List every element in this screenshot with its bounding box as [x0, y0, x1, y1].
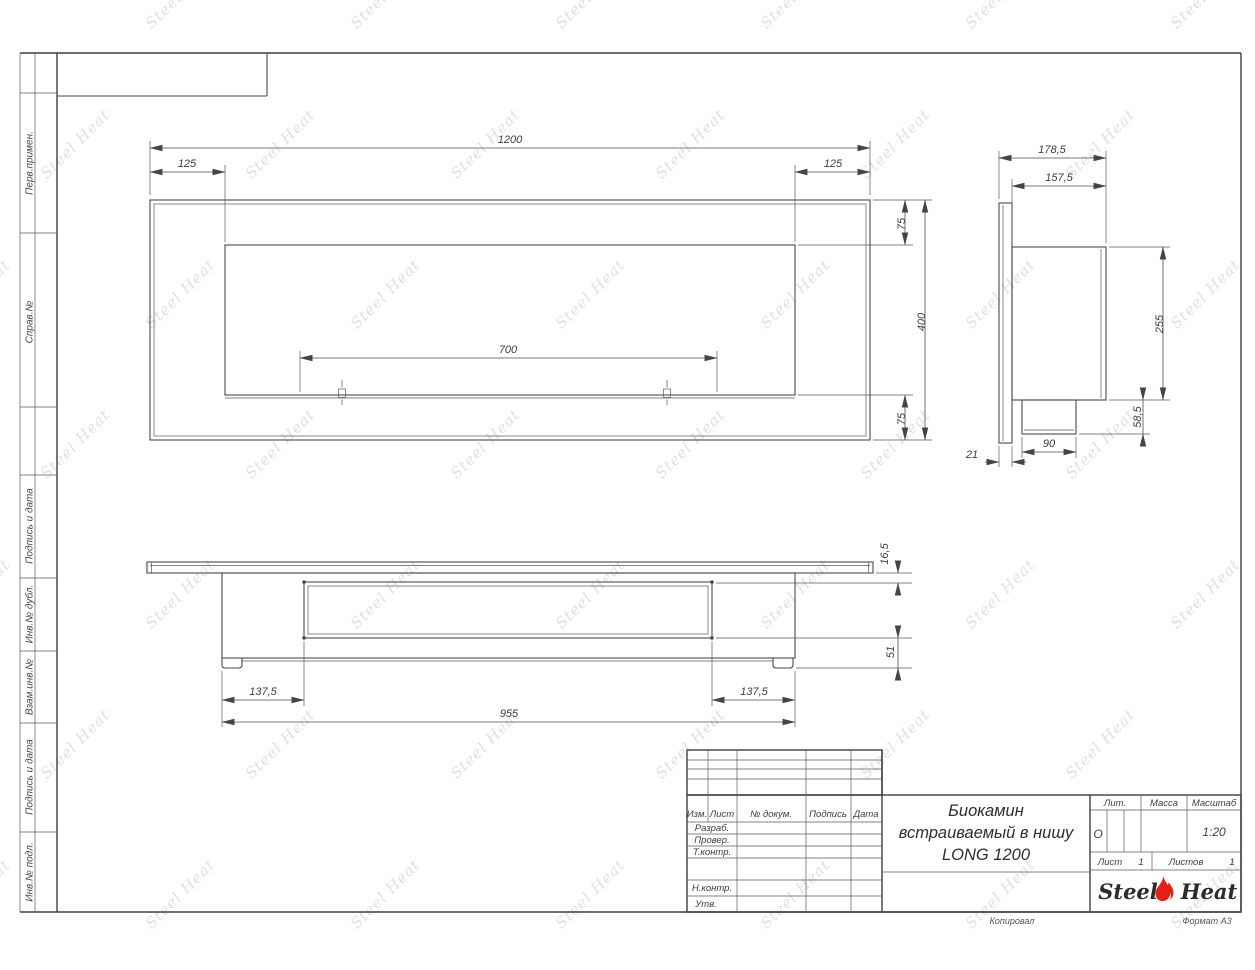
dim-front-burner-length: 700: [499, 344, 518, 356]
sheet-footer: Копировал Формат А3: [990, 916, 1232, 926]
doc-title-line3: LONG 1200: [942, 846, 1031, 864]
stamp-perv-primen: Перв.примен.: [25, 131, 36, 195]
plan-view: 16,5 51 137,5 137,5 955: [147, 542, 912, 727]
front-view: 1200 125 125 700 75 75 400: [150, 134, 932, 440]
stamp-podpis-data-2: Подпись и дата: [25, 739, 36, 815]
dim-plan-left-inset: 137,5: [249, 686, 277, 698]
steelheat-logo: Steel Heat: [1098, 876, 1237, 904]
dim-front-height: 400: [916, 312, 928, 331]
dim-plan-right-inset: 137,5: [740, 686, 768, 698]
dim-plan-body-width: 955: [500, 708, 519, 720]
lit-value: О: [1093, 827, 1102, 841]
mass-label: Масса: [1150, 798, 1178, 809]
sheet-label: Лист: [1097, 857, 1123, 868]
flame-icon: [1156, 876, 1174, 901]
dim-front-right-inset: 125: [824, 158, 843, 170]
logo-text-steel: Steel: [1098, 879, 1158, 904]
col-docnum: № докум.: [750, 809, 792, 820]
doc-title-line1: Биокамин: [948, 802, 1024, 820]
scale-value: 1:20: [1202, 825, 1226, 839]
row-prover: Провер.: [694, 835, 729, 846]
stamp-inv-podl: Инв.№ подл.: [25, 842, 36, 901]
dim-side-depth-body: 157,5: [1045, 172, 1073, 184]
col-izm: Изм.: [687, 809, 707, 820]
stamp-podpis-data-1: Подпись и дата: [25, 488, 36, 564]
stamp-vzam-inv: Взам.инв.№: [25, 659, 36, 715]
col-podpis: Подпись: [809, 809, 847, 820]
logo-text-heat: Heat: [1180, 879, 1238, 904]
footer-copied: Копировал: [990, 916, 1035, 926]
dim-front-bottom-inset: 75: [896, 412, 908, 425]
dim-front-left-inset: 125: [178, 158, 197, 170]
dim-side-spigot-width: 90: [1043, 438, 1056, 450]
sheets-total: 1: [1229, 857, 1234, 868]
dim-side-spigot-height: 58,5: [1132, 405, 1144, 427]
doc-title-line2: встраиваемый в нишу: [899, 824, 1075, 842]
row-nkontr: Н.контр.: [692, 883, 732, 894]
dim-side-flange-thickness: 21: [965, 449, 978, 461]
title-block: Изм. Лист № докум. Подпись Дата Разраб. …: [687, 750, 1241, 912]
row-tkontr: Т.контр.: [693, 847, 731, 858]
sheet-no: 1: [1138, 857, 1143, 868]
row-razrab: Разраб.: [695, 823, 729, 834]
dim-side-body-height: 255: [1154, 314, 1166, 334]
footer-format: Формат А3: [1182, 916, 1231, 926]
mounting-tab-left: [339, 380, 346, 405]
drawing-sheet: Steel HeatSteel HeatSteel HeatSteel Heat…: [0, 0, 1255, 970]
stamp-inv-dubl: Инв.№ дубл.: [24, 585, 36, 644]
mounting-tab-right: [664, 380, 671, 405]
stamp-sprav-no: Справ.№: [25, 300, 36, 343]
dim-plan-base-height: 51: [885, 646, 897, 658]
side-view: 178,5 157,5 255 58,5 90 21: [965, 144, 1170, 467]
scale-label: Масштаб: [1192, 798, 1237, 809]
dim-front-top-inset: 75: [896, 217, 908, 230]
row-utv: Утв.: [694, 899, 717, 910]
col-data: Дата: [852, 809, 878, 820]
col-list: Лист: [709, 809, 735, 820]
dim-front-width: 1200: [498, 134, 523, 146]
sheets-label: Листов: [1168, 857, 1204, 868]
dim-plan-flange-thickness: 16,5: [879, 542, 891, 564]
dim-side-depth-total: 178,5: [1038, 144, 1066, 156]
technical-drawing: Перв.примен. Справ.№ Подпись и дата Инв.…: [0, 0, 1255, 970]
lit-label: Лит.: [1103, 798, 1126, 809]
left-stamp-column: Перв.примен. Справ.№ Подпись и дата Инв.…: [20, 93, 57, 902]
